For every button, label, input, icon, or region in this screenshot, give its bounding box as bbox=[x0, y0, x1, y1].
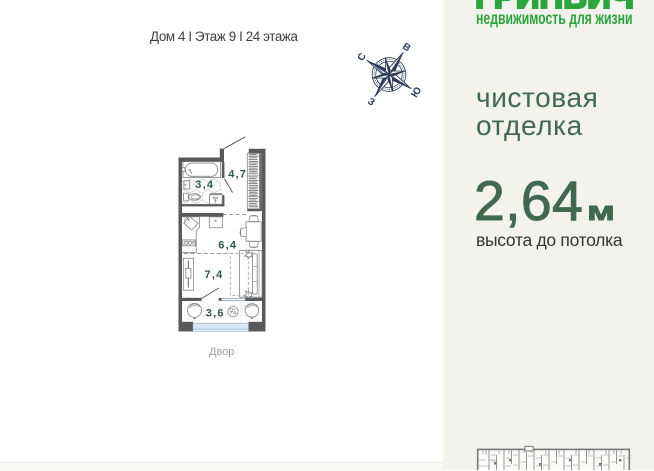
svg-text:4,7: 4,7 bbox=[228, 168, 247, 180]
svg-text:С: С bbox=[356, 51, 369, 63]
svg-text:7,4: 7,4 bbox=[205, 269, 224, 281]
svg-text:3,4: 3,4 bbox=[195, 179, 214, 191]
svg-text:Ю: Ю bbox=[409, 85, 424, 100]
svg-text:3,6: 3,6 bbox=[206, 308, 225, 320]
svg-text:З: З bbox=[365, 96, 376, 109]
svg-text:6,4: 6,4 bbox=[218, 239, 237, 251]
svg-text:В: В bbox=[400, 41, 412, 54]
